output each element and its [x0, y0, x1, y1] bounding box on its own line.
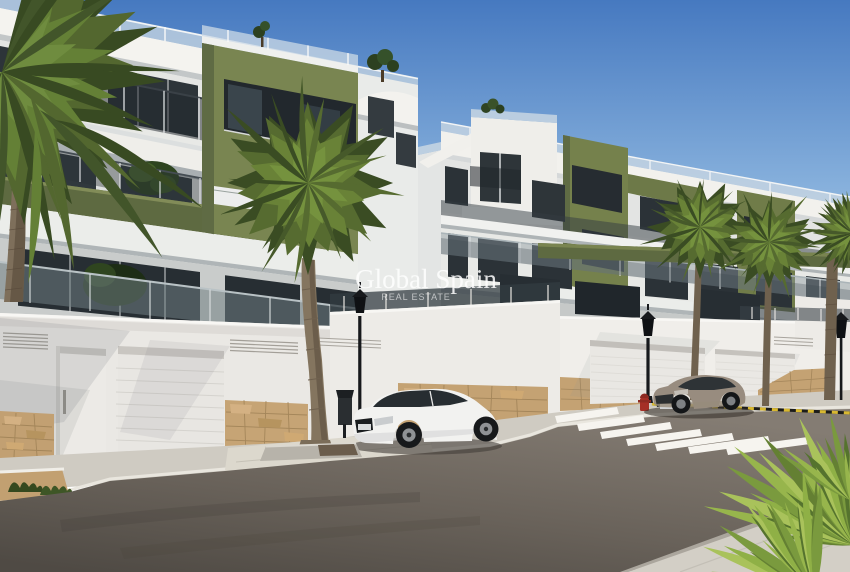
- svg-text:Global Spain: Global Spain: [355, 264, 497, 294]
- svg-text:REAL ESTATE: REAL ESTATE: [381, 292, 450, 302]
